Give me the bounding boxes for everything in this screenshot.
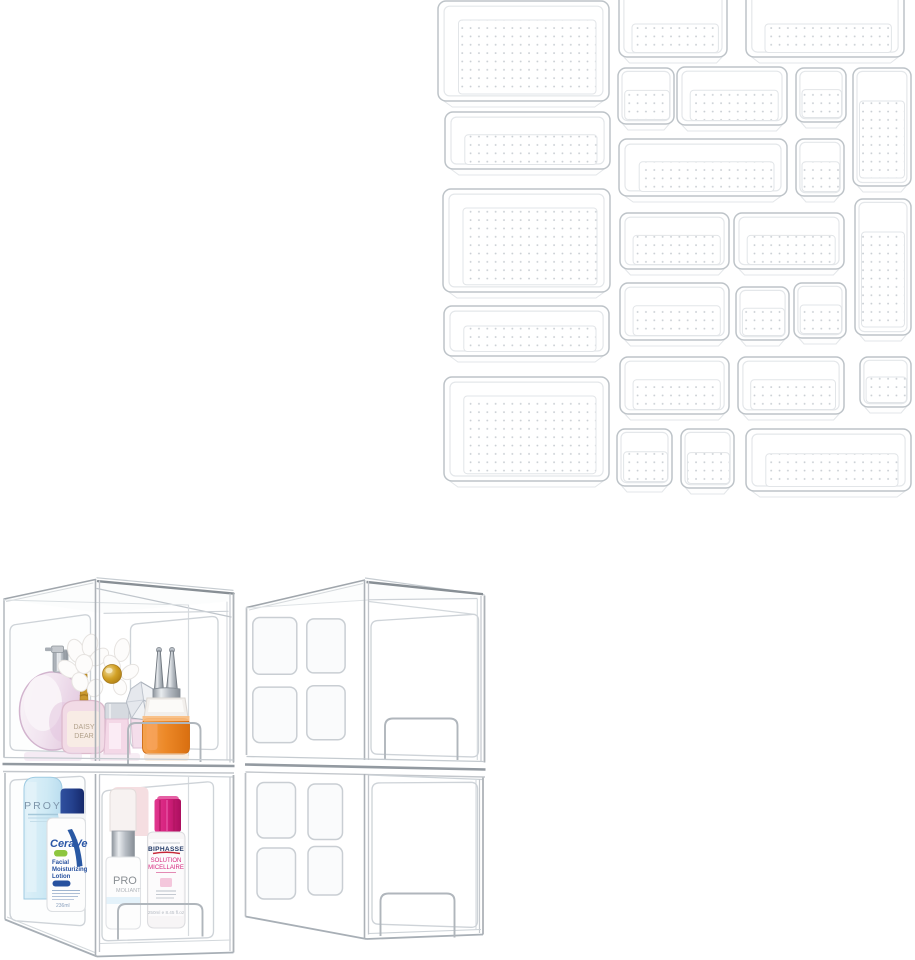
svg-text:Lotion: Lotion xyxy=(52,874,71,880)
svg-text:SOLUTION: SOLUTION xyxy=(151,858,182,864)
svg-text:DEAR: DEAR xyxy=(74,733,93,740)
svg-text:CeraVe: CeraVe xyxy=(50,838,88,850)
svg-text:PRO: PRO xyxy=(113,875,137,887)
svg-text:250ml e 8.45 fl.oz: 250ml e 8.45 fl.oz xyxy=(148,910,185,915)
svg-text:MOLIANT: MOLIANT xyxy=(116,888,141,894)
svg-text:Moisturizing: Moisturizing xyxy=(52,867,88,873)
svg-text:PROY: PROY xyxy=(24,800,62,812)
svg-text:DAISY: DAISY xyxy=(73,724,94,731)
svg-text:MICELLAIRE: MICELLAIRE xyxy=(148,865,184,871)
svg-text:236ml: 236ml xyxy=(56,903,70,909)
svg-text:Facial: Facial xyxy=(52,860,69,866)
